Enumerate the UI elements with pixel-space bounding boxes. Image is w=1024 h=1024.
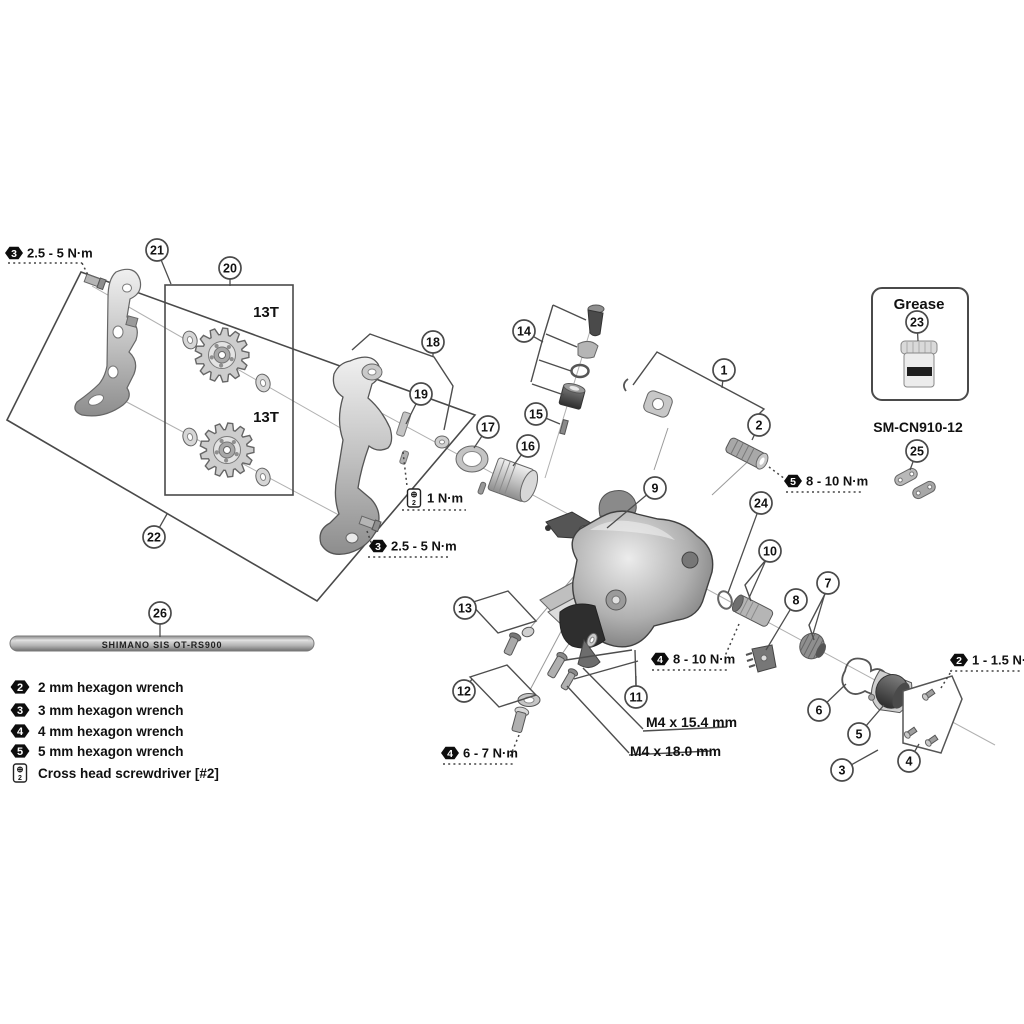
- svg-text:3: 3: [17, 705, 23, 717]
- svg-text:23: 23: [910, 315, 924, 329]
- grease-jar-23: [901, 341, 937, 387]
- callout-6: 6: [808, 684, 846, 721]
- svg-text:3: 3: [375, 541, 381, 553]
- cover-plate-4: [903, 676, 962, 753]
- svg-text:5: 5: [856, 727, 863, 741]
- svg-text:2.5 - 5 N·m: 2.5 - 5 N·m: [391, 539, 457, 554]
- guide-pulleys-13t: [195, 328, 254, 477]
- adjuster-group-14: [559, 305, 604, 410]
- svg-text:20: 20: [223, 261, 237, 275]
- callout-4: 4: [898, 744, 920, 772]
- svg-text:11: 11: [629, 690, 642, 704]
- callout-21: 21: [146, 239, 171, 284]
- pulley-top-teeth: 13T: [253, 304, 279, 321]
- torque-bracket-bolt: 46 - 7 N·m: [441, 746, 518, 761]
- legend-row-2mm: 22 mm hexagon wrench: [11, 680, 184, 695]
- svg-text:10: 10: [763, 544, 777, 558]
- torque-cover-screws: 21 - 1.5 N·m: [950, 653, 1024, 668]
- svg-text:2.5 - 5 N·m: 2.5 - 5 N·m: [27, 246, 93, 261]
- svg-text:19: 19: [414, 387, 428, 401]
- cable-marking: SHIMANO SIS OT-RS900: [102, 640, 223, 650]
- tool-legend: 22 mm hexagon wrench33 mm hexagon wrench…: [11, 680, 219, 782]
- torque-cartridge: 48 - 10 N·m: [651, 652, 735, 667]
- outer-plate-21: [75, 269, 141, 416]
- svg-text:7: 7: [825, 576, 832, 590]
- bracket-axle-unit-1: [624, 379, 674, 419]
- svg-text:12: 12: [457, 684, 471, 698]
- svg-text:3: 3: [839, 763, 846, 777]
- hex-wrench-3mm-icon: 3: [369, 540, 387, 553]
- exploded-diagram-canvas: 32.5 - 5 N·m21 N·m32.5 - 5 N·m58 - 10 N·…: [0, 0, 1024, 1024]
- svg-text:13: 13: [458, 601, 472, 615]
- svg-text:4: 4: [447, 748, 453, 760]
- hex-wrench-3mm-icon: 3: [11, 703, 30, 717]
- cartridge-10: [730, 593, 774, 627]
- svg-text:4: 4: [906, 754, 913, 768]
- svg-text:8 - 10 N·m: 8 - 10 N·m: [673, 652, 735, 667]
- hex-wrench-5mm-icon: 5: [11, 744, 30, 758]
- callout-5: 5: [848, 705, 884, 745]
- svg-text:6 - 7 N·m: 6 - 7 N·m: [463, 746, 518, 761]
- ring-17: [456, 446, 488, 472]
- clamp-bolt-2: [724, 436, 770, 471]
- svg-text:5: 5: [790, 476, 796, 488]
- hex-wrench-4mm-icon: 4: [11, 724, 30, 738]
- torque-cable-clamp: 58 - 10 N·m: [784, 474, 868, 489]
- svg-text:14: 14: [517, 324, 531, 338]
- callout-25: 25: [906, 440, 928, 470]
- svg-text:1 - 1.5 N·m: 1 - 1.5 N·m: [972, 653, 1024, 668]
- hex-wrench-4mm-icon: 4: [441, 747, 459, 760]
- bolt-spec-lower: M4 x 18.0 mm: [630, 743, 721, 759]
- callout-16: 16: [513, 435, 539, 466]
- callout-13: 13: [454, 597, 476, 619]
- svg-text:8: 8: [793, 593, 800, 607]
- svg-text:Cross head screwdriver [#2]: Cross head screwdriver [#2]: [38, 766, 219, 781]
- svg-text:2: 2: [18, 775, 22, 782]
- pulley-13t-top: [195, 328, 249, 382]
- svg-text:2: 2: [956, 655, 962, 667]
- plate-bolt-upper: [84, 273, 106, 289]
- callout-17: 17: [474, 416, 499, 448]
- svg-text:18: 18: [426, 335, 440, 349]
- set-pin-15: [560, 420, 568, 435]
- o-ring-24: [716, 589, 734, 610]
- hex-wrench-3mm-icon: 3: [5, 247, 23, 260]
- callout-10: 10: [749, 540, 781, 598]
- svg-text:15: 15: [529, 407, 543, 421]
- svg-text:3: 3: [11, 248, 17, 260]
- grease-title: Grease: [894, 296, 945, 313]
- legend-row-5mm: 55 mm hexagon wrench: [11, 744, 184, 759]
- callout-12: 12: [453, 679, 475, 702]
- legend-row-4mm: 44 mm hexagon wrench: [11, 724, 184, 739]
- callout-7: 7: [813, 572, 839, 634]
- callout-3: 3: [831, 750, 878, 781]
- torque-hinge-plate-lower: 32.5 - 5 N·m: [369, 539, 457, 554]
- callout-11: 11: [625, 676, 647, 708]
- hex-wrench-5mm-icon: 5: [784, 475, 802, 488]
- plate-washer: [435, 436, 449, 448]
- hex-wrench-2mm-icon: 2: [11, 680, 30, 694]
- svg-text:8 - 10 N·m: 8 - 10 N·m: [806, 474, 868, 489]
- chain-quick-links-25: [893, 467, 937, 501]
- callout-14: 14: [513, 320, 543, 342]
- pulley-13t-bottom: [200, 423, 254, 477]
- legend-row-3mm: 33 mm hexagon wrench: [11, 703, 184, 718]
- derailleur-body: [560, 491, 713, 668]
- legend-row-screwdriver: 2Cross head screwdriver [#2]: [14, 764, 219, 782]
- hex-wrench-4mm-icon: 4: [651, 653, 669, 666]
- svg-text:24: 24: [754, 496, 768, 510]
- svg-text:5: 5: [17, 746, 23, 758]
- svg-text:6: 6: [816, 703, 823, 717]
- svg-text:4: 4: [657, 654, 663, 666]
- cross-head-screwdriver-icon: 2: [408, 489, 421, 507]
- callout-26: 26: [149, 602, 171, 637]
- exploded-diagram-page: 32.5 - 5 N·m21 N·m32.5 - 5 N·m58 - 10 N·…: [0, 0, 1024, 1024]
- callout-22: 22: [143, 514, 167, 548]
- svg-text:2: 2: [756, 418, 763, 432]
- svg-text:26: 26: [153, 606, 167, 620]
- chain-link-model: SM-CN910-12: [873, 419, 963, 435]
- callout-18: 18: [422, 331, 444, 356]
- svg-text:17: 17: [481, 420, 495, 434]
- svg-text:4 mm hexagon wrench: 4 mm hexagon wrench: [38, 724, 184, 739]
- svg-text:2: 2: [17, 682, 23, 694]
- svg-text:25: 25: [910, 444, 924, 458]
- svg-text:5 mm hexagon wrench: 5 mm hexagon wrench: [38, 744, 184, 759]
- callout-2: 2: [748, 414, 770, 440]
- callout-20: 20: [219, 257, 241, 286]
- bolt-spec-upper: M4 x 15.4 mm: [646, 714, 737, 730]
- spring-cap-7: [795, 629, 830, 664]
- cross-head-screwdriver-icon: 2: [14, 764, 27, 782]
- svg-text:16: 16: [521, 439, 535, 453]
- torque-stopper-screw: 21 N·m: [408, 489, 464, 507]
- svg-text:9: 9: [652, 481, 659, 495]
- torque-hinge-plate-upper: 32.5 - 5 N·m: [5, 246, 93, 261]
- svg-text:21: 21: [150, 243, 164, 257]
- bracket-bolt-group-12: [510, 694, 540, 734]
- pulley-bottom-teeth: 13T: [253, 409, 279, 426]
- svg-text:4: 4: [17, 726, 24, 738]
- svg-text:3 mm hexagon wrench: 3 mm hexagon wrench: [38, 703, 184, 718]
- svg-text:22: 22: [147, 530, 161, 544]
- svg-text:1: 1: [721, 363, 728, 377]
- svg-text:1 N·m: 1 N·m: [427, 491, 463, 506]
- ratchet-plate-8: [746, 645, 776, 672]
- hex-wrench-2mm-icon: 2: [950, 654, 968, 667]
- callout-15: 15: [525, 403, 560, 425]
- svg-text:2: 2: [412, 500, 416, 507]
- svg-text:2 mm hexagon wrench: 2 mm hexagon wrench: [38, 680, 184, 695]
